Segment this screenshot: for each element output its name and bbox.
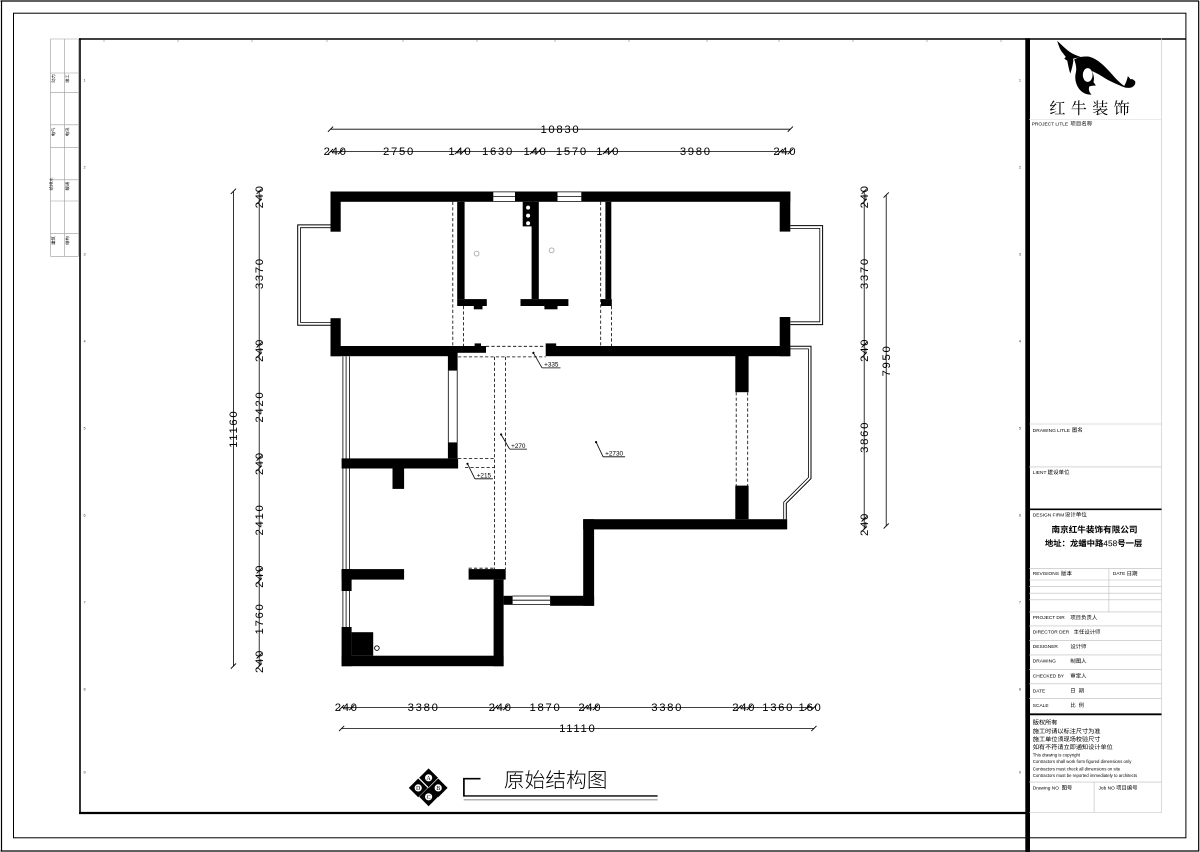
- svg-text:4: 4: [1019, 340, 1021, 344]
- svg-text:3: 3: [84, 253, 86, 257]
- svg-text:2: 2: [84, 166, 86, 170]
- svg-text:5: 5: [84, 427, 86, 431]
- svg-text:140: 140: [596, 146, 620, 158]
- svg-text:LIENT: LIENT: [1033, 470, 1047, 476]
- svg-text:3: 3: [1019, 253, 1021, 257]
- svg-text:6: 6: [84, 514, 86, 518]
- svg-text:240: 240: [254, 564, 266, 588]
- svg-text:1: 1: [84, 79, 86, 83]
- svg-text:Drawing NO: Drawing NO: [1033, 786, 1059, 792]
- svg-text:6: 6: [1019, 514, 1021, 518]
- svg-text:9: 9: [84, 771, 86, 775]
- svg-text:1: 1: [1019, 79, 1021, 83]
- svg-text:240: 240: [254, 184, 266, 208]
- svg-text:140: 140: [524, 146, 548, 158]
- svg-text:2420: 2420: [254, 391, 266, 423]
- svg-text:240: 240: [859, 184, 871, 208]
- svg-text:2: 2: [1019, 166, 1021, 170]
- svg-text:240: 240: [578, 702, 602, 714]
- svg-text:11110: 11110: [559, 723, 596, 735]
- svg-text:DESIGNER: DESIGNER: [1033, 644, 1059, 650]
- svg-text:DRAWING LITLE: DRAWING LITLE: [1033, 428, 1070, 434]
- svg-text:DIRECTOR DER: DIRECTOR DER: [1033, 630, 1070, 636]
- svg-text:Contractors must check all dim: Contractors must check all dimensions on…: [1033, 766, 1121, 771]
- svg-text:240: 240: [732, 702, 756, 714]
- svg-text:DATE: DATE: [1113, 571, 1125, 577]
- svg-text:Job NO: Job NO: [1099, 786, 1116, 792]
- svg-text:3370: 3370: [859, 257, 871, 289]
- svg-text:5: 5: [1019, 427, 1021, 431]
- svg-text:Contractors shall work form fi: Contractors shall work form figured dime…: [1033, 759, 1132, 764]
- svg-text:140: 140: [448, 146, 472, 158]
- svg-text:3860: 3860: [859, 421, 871, 453]
- svg-text:11160: 11160: [228, 410, 240, 448]
- svg-text:+215: +215: [477, 473, 492, 480]
- svg-text:3380: 3380: [651, 702, 683, 714]
- svg-text:240: 240: [254, 649, 266, 673]
- svg-text:10830: 10830: [540, 124, 580, 136]
- svg-text:This drawing is copyright: This drawing is copyright: [1033, 752, 1081, 757]
- svg-text:+2730: +2730: [605, 451, 623, 458]
- svg-text:DRAWING: DRAWING: [1033, 659, 1056, 665]
- svg-text:1630: 1630: [482, 146, 514, 158]
- svg-text:7: 7: [1019, 601, 1021, 605]
- svg-text:1570: 1570: [556, 146, 588, 158]
- svg-text:7: 7: [84, 601, 86, 605]
- svg-text:DATE: DATE: [1033, 688, 1045, 694]
- svg-text:3980: 3980: [680, 146, 712, 158]
- svg-text:PROJECT DIR: PROJECT DIR: [1033, 615, 1065, 621]
- svg-text:240: 240: [254, 451, 266, 475]
- svg-text:DESIGN FIRM: DESIGN FIRM: [1033, 512, 1064, 518]
- svg-text:160: 160: [799, 702, 823, 714]
- svg-text:3370: 3370: [254, 257, 266, 289]
- svg-text:240: 240: [859, 512, 871, 536]
- svg-text:C: C: [427, 795, 431, 801]
- svg-text:240: 240: [859, 338, 871, 362]
- svg-text:A: A: [426, 776, 431, 782]
- svg-text:240: 240: [489, 702, 513, 714]
- svg-text:PROJECT LITLE: PROJECT LITLE: [1032, 121, 1068, 127]
- svg-text:9: 9: [1019, 771, 1021, 775]
- svg-text:2750: 2750: [383, 146, 415, 158]
- svg-text:7950: 7950: [881, 345, 893, 377]
- svg-text:240: 240: [773, 146, 797, 158]
- svg-text:1760: 1760: [254, 603, 266, 635]
- svg-text:8: 8: [1019, 688, 1021, 692]
- svg-text:REVISIONS: REVISIONS: [1033, 571, 1059, 577]
- svg-text:3380: 3380: [408, 702, 440, 714]
- svg-text:4: 4: [84, 340, 86, 344]
- svg-text:240: 240: [335, 702, 359, 714]
- svg-text:1870: 1870: [530, 702, 562, 714]
- svg-text:1360: 1360: [762, 702, 794, 714]
- svg-text:+270: +270: [511, 443, 526, 450]
- svg-text:8: 8: [84, 688, 86, 692]
- svg-text:Contractors must be reported i: Contractors must be reported immediately…: [1033, 773, 1137, 778]
- svg-text:2410: 2410: [254, 504, 266, 536]
- svg-text:D: D: [416, 786, 421, 792]
- svg-text:SCALE: SCALE: [1033, 703, 1049, 709]
- svg-text:240: 240: [324, 146, 348, 158]
- svg-text:240: 240: [254, 338, 266, 362]
- svg-text:+335: +335: [544, 362, 559, 369]
- svg-text:B: B: [436, 786, 440, 792]
- svg-text:CHECKED BY: CHECKED BY: [1033, 674, 1065, 680]
